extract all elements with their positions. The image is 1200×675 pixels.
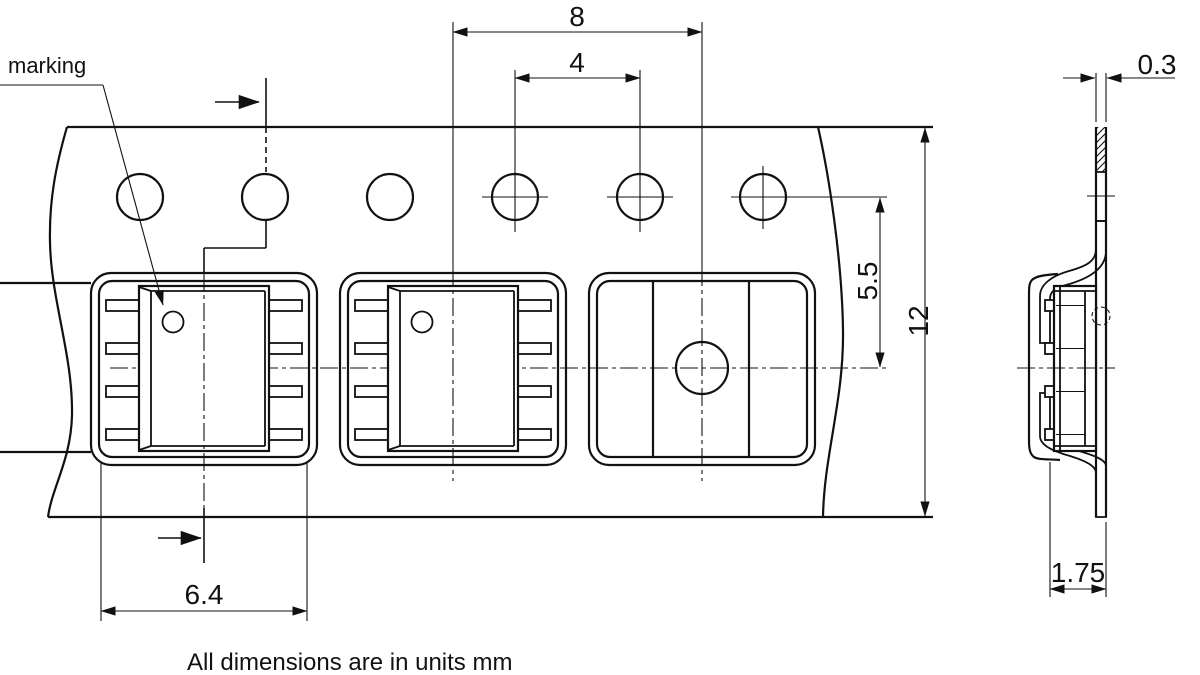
dimension-hole-pitch: 4 <box>515 47 640 232</box>
ic-lead <box>518 343 551 354</box>
sprocket-hole <box>242 174 288 220</box>
tape-right-break-line <box>818 127 843 517</box>
ic-lead <box>106 429 139 440</box>
sprocket-hole <box>367 174 413 220</box>
ic-lead <box>269 300 302 311</box>
plan-view: marking 8 4 5.5 12 6 <box>0 1 934 621</box>
tape-section-hatch <box>1096 127 1106 172</box>
extension-line <box>515 70 640 232</box>
side-view: 0.3 1.75 <box>1017 49 1176 597</box>
sprocket-holes <box>117 166 786 229</box>
ic-lead <box>355 429 388 440</box>
dimension-value: 1.75 <box>1051 557 1106 588</box>
ic-lead <box>518 386 551 397</box>
dimension-tape-width: 12 <box>903 128 934 516</box>
extension-line <box>1096 73 1106 122</box>
ic-lead <box>269 386 302 397</box>
dimension-pocket-depth: 1.75 <box>1050 462 1106 597</box>
dimension-tape-thickness: 0.3 <box>1063 49 1176 122</box>
ic-lead <box>355 300 388 311</box>
dimension-value: 6.4 <box>185 579 224 610</box>
dimension-pocket-pitch: 8 <box>453 1 702 32</box>
ic-lead <box>518 300 551 311</box>
dimension-value: 5.5 <box>852 262 883 301</box>
dimension-value: 8 <box>569 1 585 32</box>
dimension-value: 4 <box>569 47 585 78</box>
ic-lead <box>106 300 139 311</box>
dimension-value: 0.3 <box>1138 49 1177 80</box>
marking-label: marking <box>8 53 86 78</box>
ic-lead <box>269 429 302 440</box>
units-note: All dimensions are in units mm <box>187 649 512 675</box>
drawing-canvas: marking 8 4 5.5 12 6 <box>0 0 1200 675</box>
ic-lead <box>269 343 302 354</box>
ic-lead <box>355 343 388 354</box>
ic-lead <box>106 343 139 354</box>
marking-callout: marking <box>0 53 163 305</box>
tape-left-break-line <box>48 127 72 517</box>
ic-lead <box>518 429 551 440</box>
ic-lead <box>355 386 388 397</box>
dimension-value: 12 <box>903 305 934 336</box>
ic-lead <box>106 386 139 397</box>
sprocket-hole <box>117 174 163 220</box>
section-line-jog <box>204 221 266 273</box>
carrier-tape-technical-drawing: marking 8 4 5.5 12 6 <box>0 0 1200 675</box>
pocket-floor-lines <box>653 282 749 456</box>
